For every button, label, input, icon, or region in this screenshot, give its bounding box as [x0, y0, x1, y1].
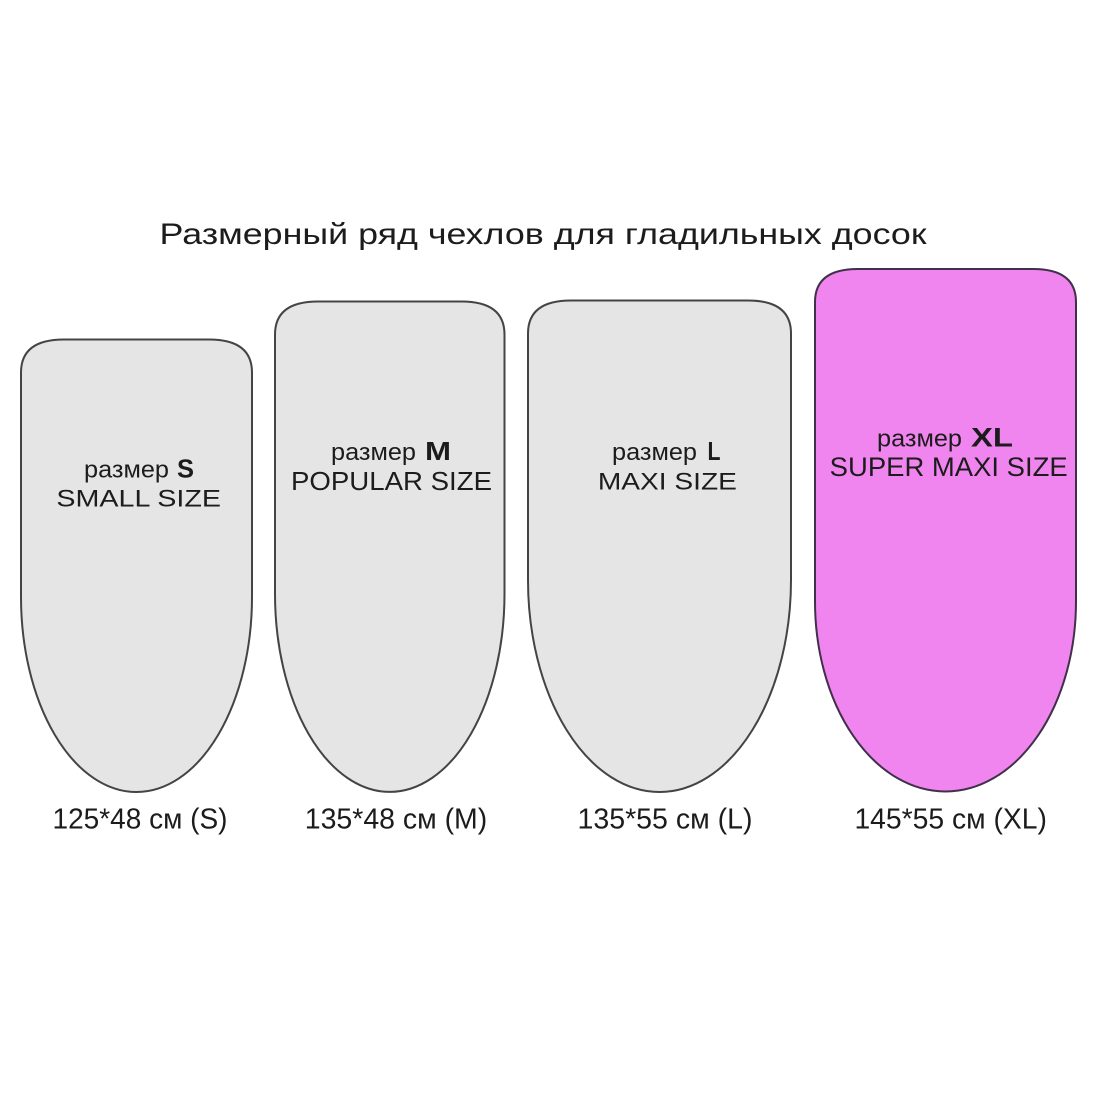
svg-text:SUPER MAXI SIZE: SUPER MAXI SIZE — [830, 452, 1068, 482]
svg-text:размер: размер — [612, 439, 697, 466]
svg-text:Размерный ряд чехлов для глади: Размерный ряд чехлов для гладильных досо… — [160, 218, 928, 251]
svg-text:S: S — [177, 453, 194, 483]
svg-text:размер: размер — [84, 456, 169, 483]
svg-text:145*55 см (XL): 145*55 см (XL) — [854, 804, 1047, 836]
svg-text:M: M — [425, 436, 451, 466]
svg-text:MAXI SIZE: MAXI SIZE — [598, 468, 737, 495]
svg-text:размер: размер — [331, 439, 416, 466]
svg-text:135*48 см (M): 135*48 см (M) — [305, 804, 488, 836]
svg-text:XL: XL — [971, 422, 1013, 452]
svg-text:размер: размер — [877, 425, 962, 452]
svg-text:135*55 см (L): 135*55 см (L) — [578, 804, 753, 836]
svg-text:125*48 см (S): 125*48 см (S) — [53, 804, 228, 836]
svg-text:SMALL SIZE: SMALL SIZE — [56, 486, 221, 513]
svg-text:L: L — [708, 436, 721, 466]
svg-text:POPULAR SIZE: POPULAR SIZE — [291, 466, 492, 496]
